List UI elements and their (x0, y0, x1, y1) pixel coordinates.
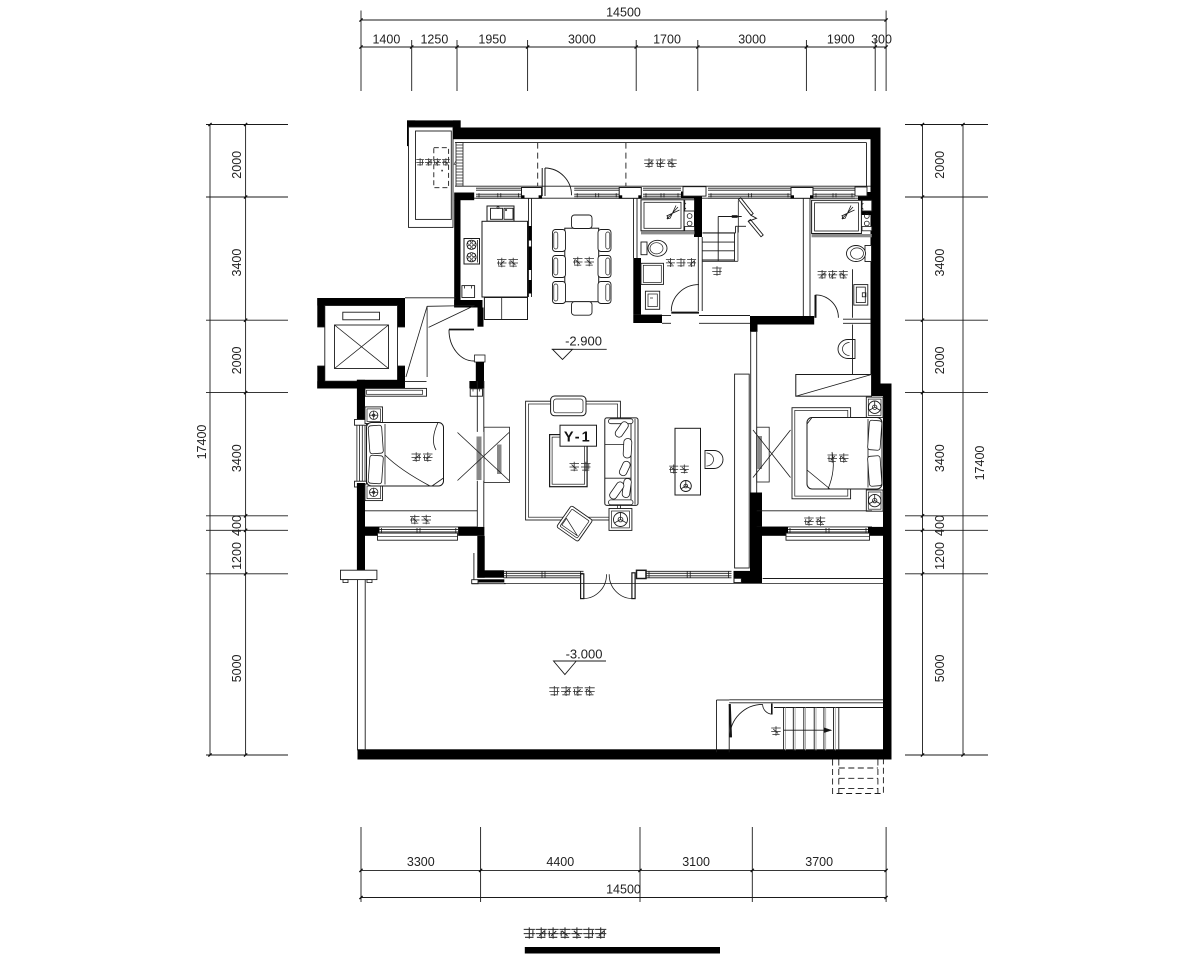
svg-text:3300: 3300 (407, 855, 435, 869)
svg-text:3100: 3100 (682, 855, 710, 869)
svg-text:3400: 3400 (230, 444, 244, 472)
svg-text:2000: 2000 (933, 346, 947, 374)
svg-text:4400: 4400 (546, 855, 574, 869)
svg-text:14500: 14500 (606, 6, 641, 20)
svg-text:3000: 3000 (568, 33, 596, 47)
svg-text:3000: 3000 (738, 33, 766, 47)
svg-text:400: 400 (933, 515, 947, 536)
svg-text:3400: 3400 (933, 444, 947, 472)
svg-text:2000: 2000 (230, 151, 244, 179)
svg-text:2000: 2000 (230, 346, 244, 374)
svg-text:5000: 5000 (933, 654, 947, 682)
svg-text:17400: 17400 (973, 446, 987, 481)
svg-text:400: 400 (230, 515, 244, 536)
svg-text:1250: 1250 (420, 33, 448, 47)
svg-text:1200: 1200 (933, 542, 947, 570)
svg-text:-3.000: -3.000 (566, 647, 603, 662)
svg-text:1200: 1200 (230, 542, 244, 570)
svg-text:Y-1: Y-1 (564, 430, 592, 446)
svg-text:14500: 14500 (606, 883, 641, 897)
svg-text:2000: 2000 (933, 151, 947, 179)
svg-text:5000: 5000 (230, 654, 244, 682)
svg-text:300: 300 (871, 33, 892, 47)
svg-text:17400: 17400 (195, 425, 209, 460)
svg-text:1400: 1400 (372, 33, 400, 47)
svg-text:1700: 1700 (653, 33, 681, 47)
svg-text:1950: 1950 (478, 33, 506, 47)
svg-text:3700: 3700 (805, 855, 833, 869)
svg-text:-2.900: -2.900 (565, 334, 602, 349)
svg-text:3400: 3400 (230, 249, 244, 277)
svg-text:1900: 1900 (827, 33, 855, 47)
svg-text:3400: 3400 (933, 249, 947, 277)
